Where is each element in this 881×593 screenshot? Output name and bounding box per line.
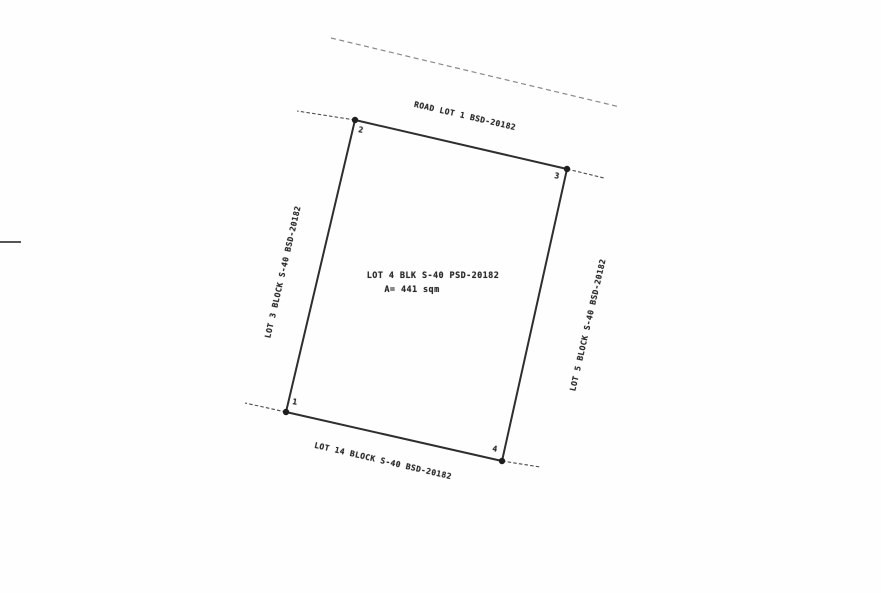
boundary-extension-corner4 (502, 461, 540, 467)
survey-plan-sheet: ROAD LOT 1 BSD-20182 LOT 4 BLK S-40 PSD-… (0, 0, 881, 593)
road-edge-dashed-line (331, 38, 620, 107)
boundary-extension-corner3 (567, 169, 604, 178)
corner-point-1 (283, 409, 289, 415)
corner-point-3 (564, 166, 570, 172)
subject-lot-label: LOT 4 BLK S-40 PSD-20182 (367, 271, 499, 281)
boundary-extension-corner1 (245, 403, 286, 412)
boundary-extension-corner2 (297, 111, 355, 120)
lot-area-label: A= 441 sqm (384, 285, 439, 295)
survey-plan-drawing (0, 0, 881, 593)
corner-point-2 (352, 117, 358, 123)
corner-point-4 (499, 458, 505, 464)
